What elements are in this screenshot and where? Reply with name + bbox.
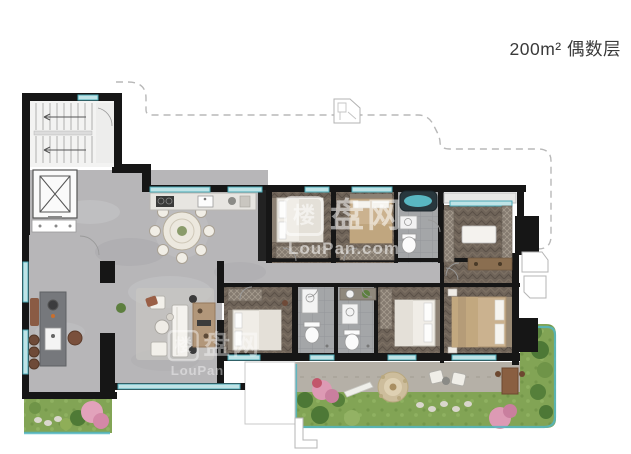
lower-roof-outline [245, 362, 295, 424]
bedroom2-furniture [272, 198, 328, 258]
key-plan-icon [334, 99, 360, 123]
floorplan-page: 200m² 偶数层 [0, 0, 631, 454]
elevator [33, 170, 77, 219]
kitchen-counter [150, 193, 256, 210]
stairwell [30, 101, 114, 167]
floor-plan-drawing [0, 0, 631, 454]
garden-left-strip [24, 398, 112, 433]
